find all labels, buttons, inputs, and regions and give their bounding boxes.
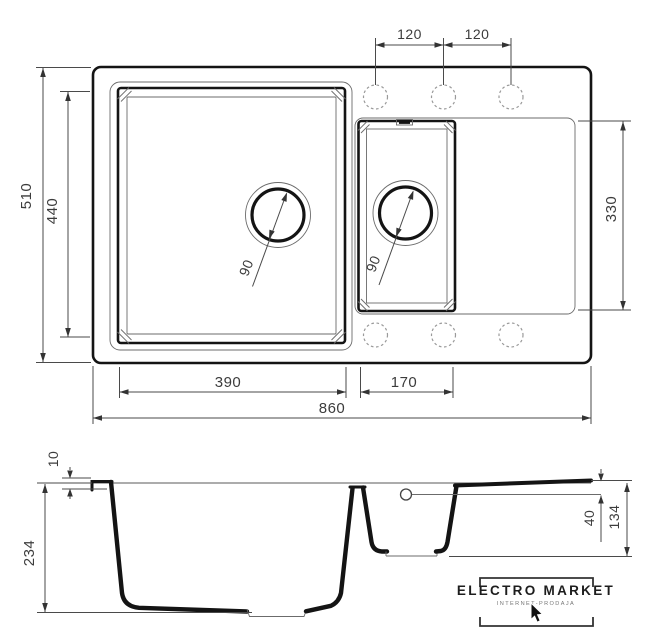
dim-hole-spacing: 120 120 — [376, 26, 512, 85]
sink-outline — [93, 67, 591, 363]
dim-10-label: 10 — [45, 451, 61, 468]
half-drain-diameter-label: 90 — [363, 253, 384, 274]
logo-text: ELECTRO MARKET — [457, 583, 615, 598]
section-main-bowl-right — [306, 489, 353, 612]
section-half-bowl-right — [436, 486, 457, 552]
section-drainer-surface — [455, 481, 591, 486]
dim-overall-width: 860 — [93, 366, 591, 424]
section-main-drain-recess — [247, 610, 307, 617]
dim-recess-length: 330 — [578, 121, 631, 310]
dim-rim-thickness: 10 — [45, 451, 107, 499]
faucet-hole — [432, 323, 456, 347]
main-drain-diameter-label: 90 — [236, 257, 257, 278]
arrowhead — [269, 230, 275, 239]
dim-main-bowl-width: 390 — [120, 367, 347, 398]
faucet-hole — [364, 85, 388, 109]
main-bowl-rim — [118, 88, 345, 343]
faucet-hole — [364, 323, 388, 347]
section-half-drain-recess — [386, 552, 437, 557]
dim-inner-depth: 440 — [44, 92, 90, 338]
dim-main-bowl-depth: 234 — [21, 483, 252, 613]
section-half-bowl-left — [363, 488, 387, 552]
dim-120-left-label: 120 — [397, 26, 422, 42]
main-bowl-corner-bevels — [118, 88, 346, 344]
dim-40-label: 40 — [581, 510, 597, 527]
faucet-hole — [432, 85, 456, 109]
main-bowl: 90 — [110, 82, 352, 350]
logo-subtitle: INTERNET-PRODAJA — [497, 601, 575, 607]
dim-120-right-label: 120 — [465, 26, 490, 42]
faucet-hole — [499, 323, 523, 347]
arrowhead — [281, 193, 287, 202]
drainer-recess-edge — [355, 118, 575, 314]
plan-view: 90 90 — [18, 26, 631, 424]
main-bowl-outer-edge — [110, 82, 352, 350]
overflow-hole — [401, 489, 412, 500]
dim-234-label: 234 — [21, 540, 38, 567]
arrowhead — [396, 228, 402, 237]
main-drain-outer — [246, 183, 311, 248]
arrowhead — [408, 191, 414, 200]
dim-860-label: 860 — [319, 400, 346, 417]
technical-drawing-page: 90 90 — [0, 0, 656, 640]
faucet-holes — [364, 85, 524, 347]
dim-330-label: 330 — [603, 196, 620, 223]
dim-390-label: 390 — [215, 374, 242, 391]
main-drain-hole — [252, 189, 304, 241]
dim-134-label: 134 — [606, 505, 622, 530]
dim-170-label: 170 — [391, 374, 418, 391]
half-bowl: 90 — [358, 120, 456, 312]
section-main-bowl-left — [111, 482, 247, 612]
faucet-hole — [499, 85, 523, 109]
dim-510-label: 510 — [18, 183, 35, 210]
overflow-slot — [399, 121, 410, 124]
dim-half-bowl-depth: 134 — [449, 481, 632, 557]
sink-drawing: 90 90 — [0, 0, 656, 640]
half-bowl-corner-bevels — [358, 121, 456, 311]
dim-half-bowl-width: 170 — [361, 367, 454, 398]
dim-440-label: 440 — [44, 198, 61, 225]
